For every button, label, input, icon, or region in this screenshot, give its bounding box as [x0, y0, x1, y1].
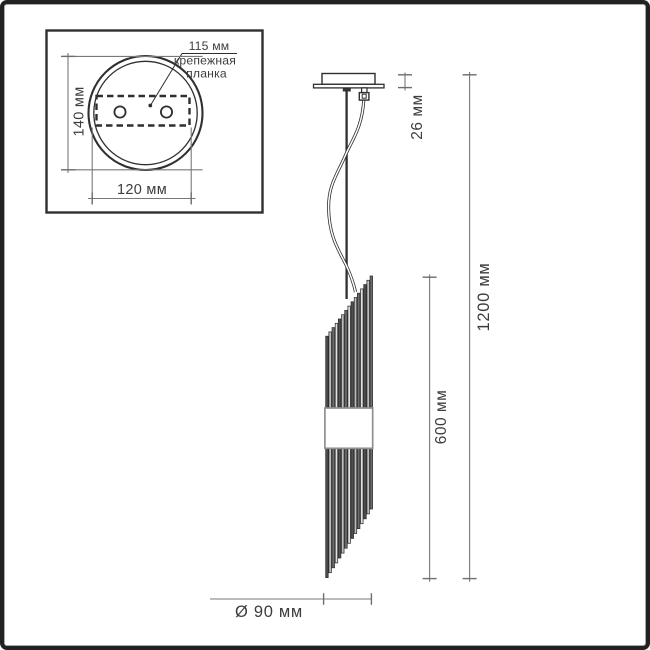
body-height-label: 600 мм [433, 390, 450, 444]
dimension-canopy-depth: 26 мм [398, 73, 426, 140]
lamp-rod [329, 332, 332, 573]
canopy-diameter-label: 140 мм [72, 87, 88, 137]
pendant-front-view [314, 74, 385, 578]
dimension-diameter: Ø 90 мм [210, 593, 372, 621]
lamp-rod [370, 276, 373, 509]
diameter-label: Ø 90 мм [235, 603, 303, 621]
technical-drawing: 115 мм крепежная планка 140 мм 120 мм [0, 0, 650, 650]
lamp-rod [364, 285, 367, 519]
lamp-rod [367, 280, 370, 514]
hole-spacing-label: 115 мм [189, 39, 230, 53]
bracket-label-line1: крепежная [174, 54, 236, 68]
bracket-width-label: 120 мм [117, 182, 167, 198]
lamp-rod [326, 336, 329, 577]
bracket-label-line2: планка [186, 67, 227, 81]
total-height-label: 1200 мм [475, 263, 493, 332]
ceiling-mount-inset: 115 мм крепежная планка 140 мм 120 мм [47, 31, 263, 213]
dimension-body-height: 600 мм [423, 275, 450, 582]
canopy-body [322, 74, 375, 85]
wire-connector [343, 88, 351, 92]
pendant-dimension-diagram: 115 мм крепежная планка 140 мм 120 мм [0, 0, 650, 650]
canopy-depth-label: 26 мм [409, 94, 426, 139]
center-band [325, 408, 373, 448]
dimension-total-height: 1200 мм [463, 72, 493, 582]
lamp-rod [361, 289, 364, 524]
ceiling-plate [314, 84, 385, 88]
